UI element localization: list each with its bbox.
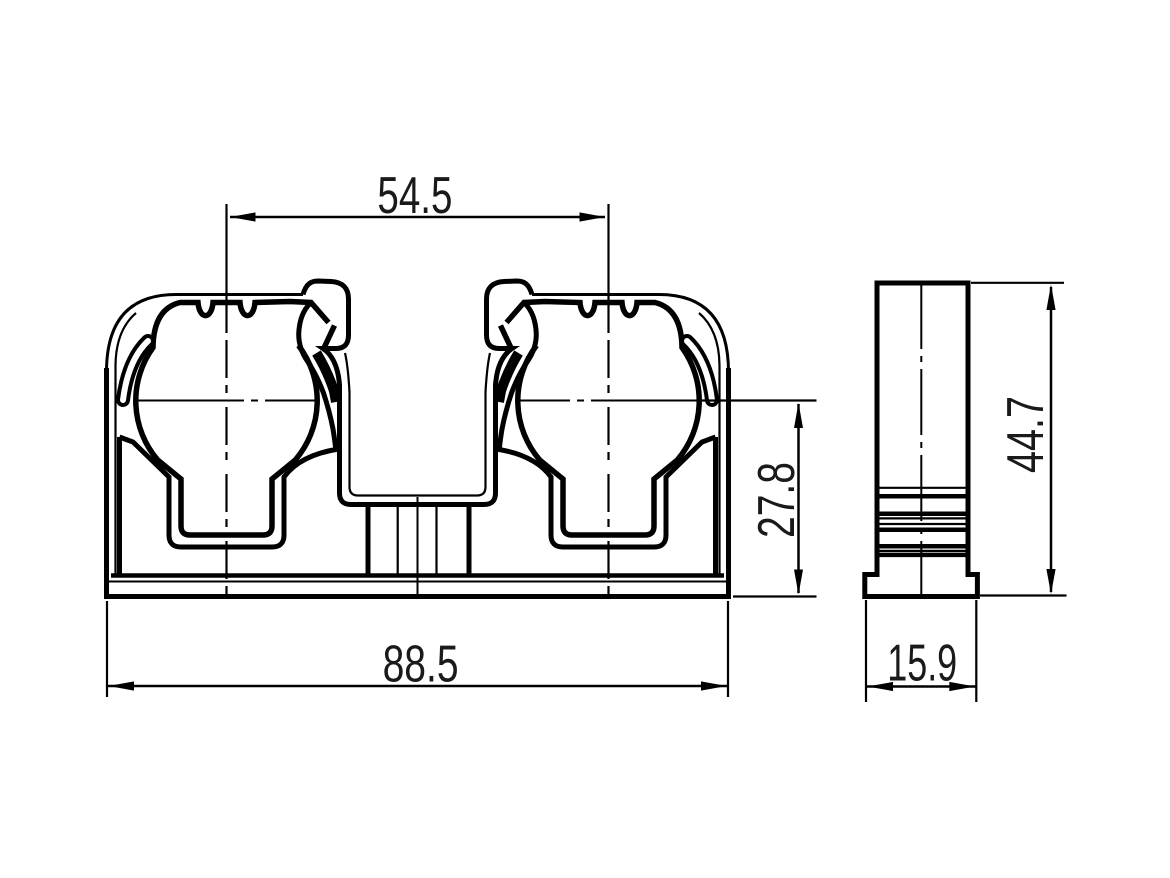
svg-text:54.5: 54.5 [377,167,452,225]
svg-text:27.8: 27.8 [748,462,806,538]
svg-text:44.7: 44.7 [997,396,1055,473]
svg-text:15.9: 15.9 [887,635,957,693]
svg-text:88.5: 88.5 [383,635,459,693]
